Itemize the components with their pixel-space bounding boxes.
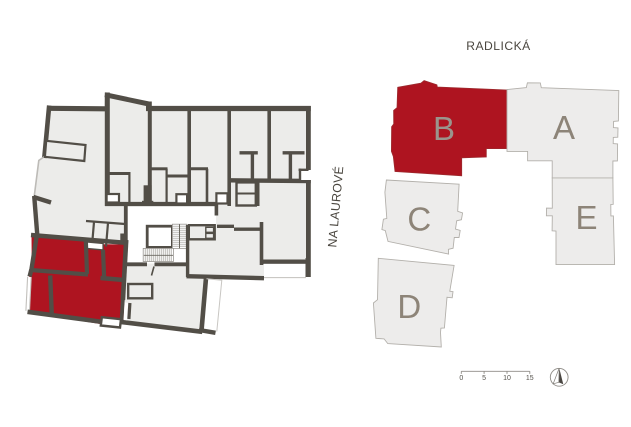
svg-text:0: 0: [459, 375, 463, 382]
svg-text:RADLICKÁ: RADLICKÁ: [466, 38, 531, 53]
svg-text:5: 5: [482, 375, 486, 382]
svg-text:B: B: [433, 110, 455, 147]
svg-text:C: C: [407, 200, 431, 237]
svg-text:A: A: [553, 109, 575, 146]
svg-text:E: E: [575, 199, 597, 236]
svg-text:D: D: [397, 288, 421, 325]
svg-text:10: 10: [503, 375, 511, 382]
svg-text:15: 15: [526, 375, 534, 382]
